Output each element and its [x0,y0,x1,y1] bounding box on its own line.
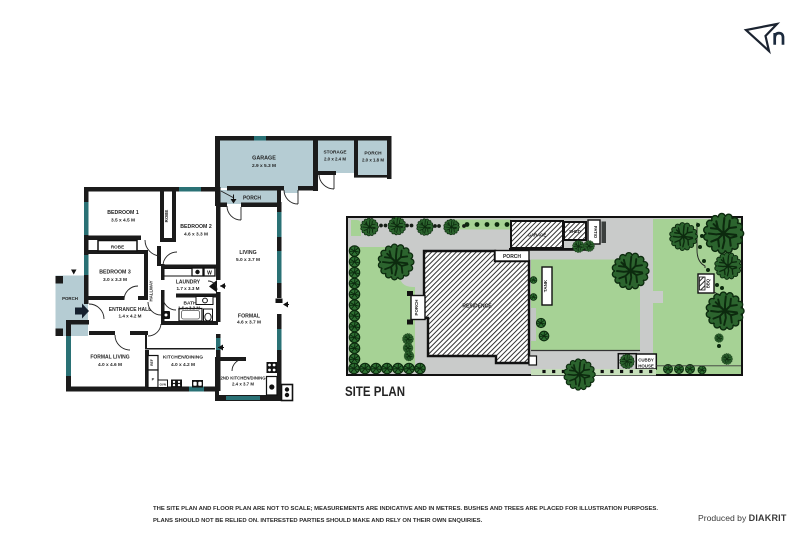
svg-text:FORMAL: FORMAL [238,314,261,320]
svg-text:HOUSE: HOUSE [638,364,654,369]
svg-text:ENTRANCE HALL: ENTRANCE HALL [109,307,152,313]
svg-text:4.0 x 4.2 M: 4.0 x 4.2 M [171,362,195,368]
svg-text:2.4 x 3.7 M: 2.4 x 3.7 M [232,382,254,387]
svg-text:PORCH: PORCH [243,196,261,202]
svg-text:2ND KITCHEN/DINING: 2ND KITCHEN/DINING [220,376,266,381]
svg-text:FORMAL LIVING: FORMAL LIVING [90,355,129,361]
svg-text:1.7 x 3.3 M: 1.7 x 3.3 M [177,286,200,291]
svg-text:SITE PLAN: SITE PLAN [345,384,405,399]
svg-text:2.9 x 5.3 M: 2.9 x 5.3 M [252,163,276,169]
svg-text:SHED: SHED [569,229,581,234]
svg-text:PATIO: PATIO [593,226,598,239]
svg-text:BBQ: BBQ [706,278,711,288]
svg-text:KITCHEN/DINING: KITCHEN/DINING [163,355,203,361]
svg-text:BEDROOM 3: BEDROOM 3 [99,270,131,276]
svg-text:RESIDENCE: RESIDENCE [462,304,492,310]
svg-text:1.6 x 3.3 M: 1.6 x 3.3 M [178,306,200,311]
svg-text:GARAGE: GARAGE [528,233,547,238]
svg-text:ROBE: ROBE [164,210,169,223]
svg-text:PORCH: PORCH [503,254,521,260]
svg-text:LAUNDRY: LAUNDRY [176,280,201,286]
svg-text:BEDROOM 2: BEDROOM 2 [180,224,212,230]
svg-text:2.0 x 2.4 M: 2.0 x 2.4 M [324,157,346,162]
svg-text:2.0 x 1.8 M: 2.0 x 1.8 M [362,158,384,163]
svg-text:HALLWAY: HALLWAY [149,280,154,301]
svg-text:TANK: TANK [543,279,548,292]
svg-text:3.0 x 3.3 M: 3.0 x 3.3 M [103,277,127,283]
svg-text:3.5 x 4.5 M: 3.5 x 4.5 M [111,218,135,224]
svg-text:PORCH: PORCH [62,296,78,301]
svg-text:W: W [207,271,212,277]
svg-text:P: P [152,377,155,382]
svg-text:BEDROOM 1: BEDROOM 1 [107,210,139,216]
svg-text:1.4 x 4.2 M: 1.4 x 4.2 M [119,314,142,319]
svg-text:REF: REF [150,359,154,366]
svg-text:OVN: OVN [160,382,166,386]
svg-text:STORAGE: STORAGE [323,150,346,155]
svg-text:LIVING: LIVING [239,250,256,256]
svg-text:4.6 x 3.3 M: 4.6 x 3.3 M [184,232,208,238]
svg-text:4.0 x 4.6 M: 4.0 x 4.6 M [98,362,122,368]
svg-text:PLANS SHOULD NOT BE RELIED ON.: PLANS SHOULD NOT BE RELIED ON. INTERESTE… [153,518,483,524]
svg-text:ROBE: ROBE [111,245,124,250]
svg-text:5.0 x 3.7 M: 5.0 x 3.7 M [236,257,260,263]
svg-text:PORCH: PORCH [414,300,419,316]
svg-text:PORCH: PORCH [364,151,382,157]
svg-text:Produced by DIAKRIT: Produced by DIAKRIT [698,513,787,523]
svg-text:CUBBY: CUBBY [638,358,654,363]
svg-text:THE SITE PLAN AND FLOOR PLAN A: THE SITE PLAN AND FLOOR PLAN ARE NOT TO … [153,506,658,512]
svg-text:GARAGE: GARAGE [252,156,276,162]
svg-text:4.6 x 3.7 M: 4.6 x 3.7 M [237,320,261,326]
